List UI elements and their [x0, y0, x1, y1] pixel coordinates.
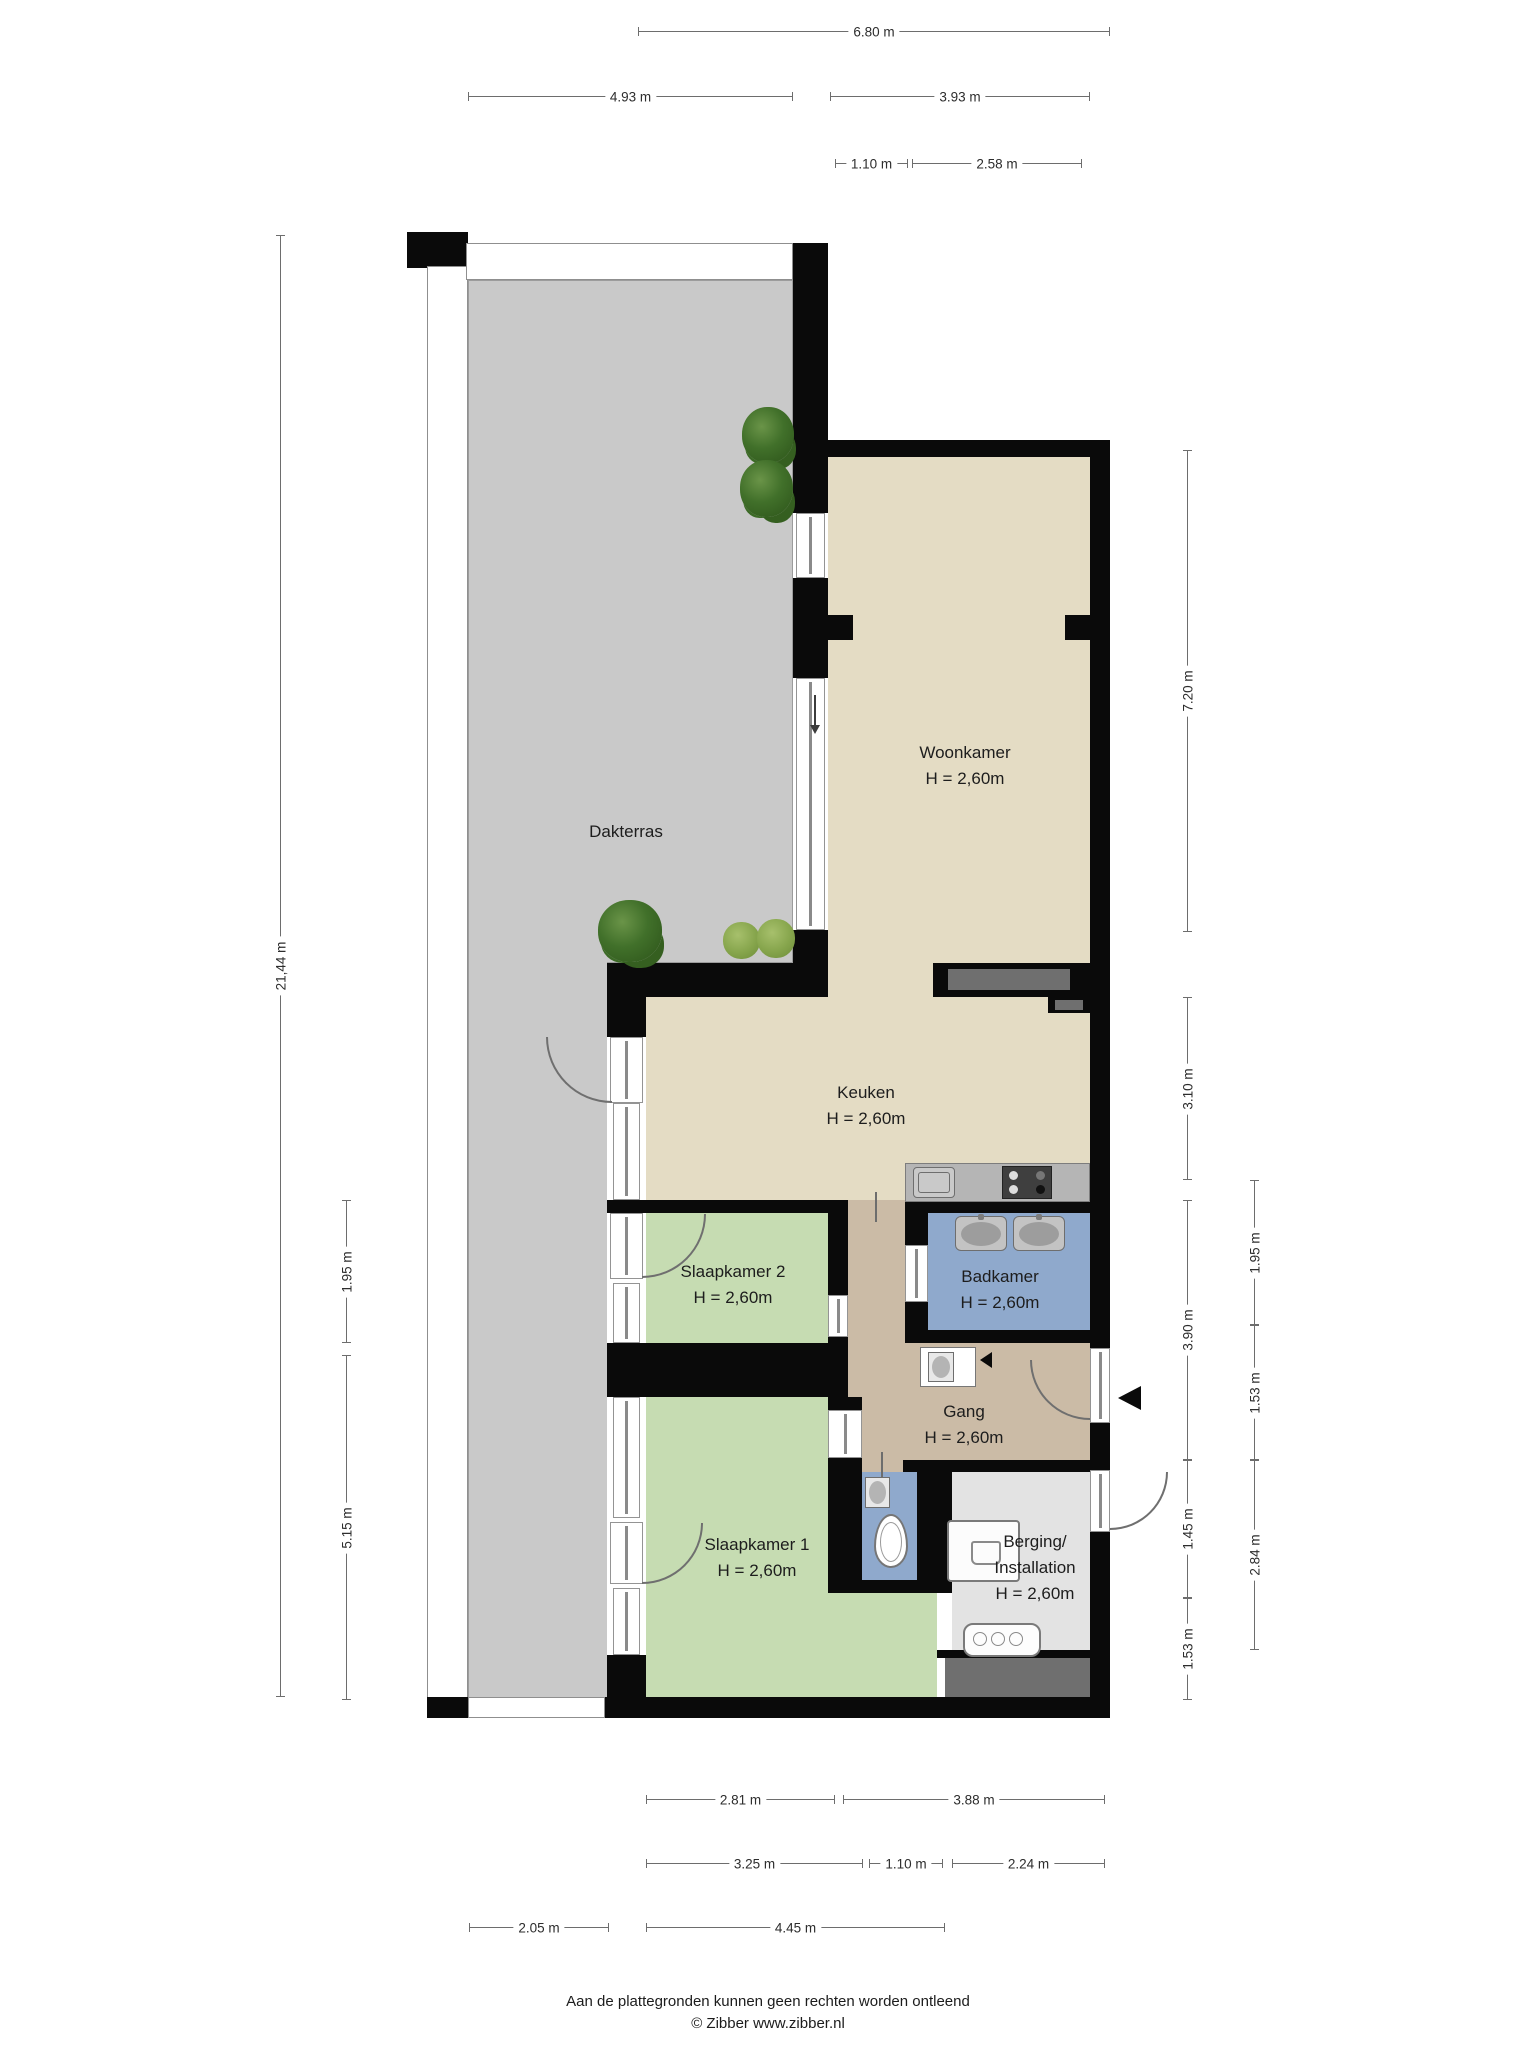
window [613, 1103, 640, 1200]
dim-tick [276, 235, 285, 236]
berging-door-arc [1110, 1472, 1168, 1530]
wall [607, 1200, 646, 1213]
dim-tick [608, 1923, 609, 1932]
dim-label: 2.24 m [1003, 1857, 1054, 1872]
room-name-2: Installation [994, 1558, 1075, 1577]
boiler-icon [963, 1623, 1041, 1657]
room-name: Dakterras [589, 822, 663, 841]
dim-tick [835, 159, 836, 168]
dim-label: 4.93 m [605, 90, 656, 105]
dimension-2144m: 21,44 m [276, 235, 286, 1697]
entrance-arrow-icon [1118, 1386, 1141, 1410]
wall-bedroom-divider [607, 1343, 848, 1397]
dimension-680m: 6.80 m [638, 27, 1110, 37]
wall-bottom-facade [605, 1697, 1110, 1718]
shrub-icon [757, 919, 795, 958]
dim-label: 1.95 m [1248, 1227, 1263, 1278]
dim-label: 4.45 m [770, 1921, 821, 1936]
dimension-493m: 4.93 m [468, 92, 793, 102]
dimension-153m: 1.53 m [1183, 1598, 1193, 1700]
room-height: H = 2,60m [996, 1584, 1075, 1603]
dim-label: 1.53 m [1248, 1367, 1263, 1418]
terrace-door-slaapkamer2 [610, 1213, 643, 1279]
dim-label: 2.05 m [513, 1921, 564, 1936]
dim-tick [1183, 1460, 1192, 1461]
dim-tick [1250, 1180, 1259, 1181]
dim-tick [342, 1342, 351, 1343]
dim-label: 3.90 m [1181, 1304, 1196, 1355]
dim-label: 21,44 m [274, 937, 289, 996]
dim-label: 1.10 m [880, 1857, 931, 1872]
dimension-281m: 2.81 m [646, 1795, 835, 1805]
wall [427, 1697, 468, 1718]
dim-tick [646, 1859, 647, 1868]
dim-tick [830, 92, 831, 101]
wall [607, 997, 646, 1037]
room-label-keuken: KeukenH = 2,60m [827, 1080, 906, 1132]
dim-tick [342, 1200, 351, 1201]
dimension-720m: 7.20 m [1183, 450, 1193, 932]
dim-tick [1104, 1859, 1105, 1868]
dimension-110m: 1.10 m [869, 1859, 943, 1869]
room-label-dakterras: Dakterras [589, 819, 663, 845]
dim-tick [862, 1859, 863, 1868]
shrub-icon [723, 922, 760, 959]
dim-label: 3.88 m [948, 1793, 999, 1808]
room-height: H = 2,60m [694, 1288, 773, 1307]
lowered-wall-inset [948, 969, 1070, 990]
dim-label: 1.95 m [340, 1246, 355, 1297]
dim-label: 2.58 m [971, 157, 1022, 172]
sliding-door-large [796, 678, 825, 930]
burner-icon [1009, 1185, 1018, 1194]
dimension-325m: 3.25 m [646, 1859, 863, 1869]
door-slaapkamer1-gang [828, 1410, 862, 1458]
wall [607, 1655, 646, 1703]
room-label-badkamer: BadkamerH = 2,60m [961, 1264, 1040, 1316]
window [613, 1588, 640, 1655]
wall-toilet-bottom [845, 1580, 952, 1593]
terrace-bottom-railing [468, 1697, 605, 1718]
room-name: Berging/ [1003, 1532, 1066, 1551]
dimension-205m: 2.05 m [469, 1923, 609, 1933]
dim-tick [1250, 1325, 1259, 1326]
dim-label: 3.10 m [1181, 1063, 1196, 1114]
dim-tick [912, 159, 913, 168]
room-slaapkamer1-ext [845, 1593, 937, 1697]
burner-icon [1009, 1171, 1018, 1180]
dimension-393m: 3.93 m [830, 92, 1090, 102]
room-label-slaapkamer2: Slaapkamer 2H = 2,60m [681, 1259, 786, 1311]
room-height: H = 2,60m [961, 1293, 1040, 1312]
burner-icon [1036, 1185, 1045, 1194]
wall [407, 232, 468, 268]
room-name: Slaapkamer 2 [681, 1262, 786, 1281]
dim-tick [1183, 931, 1192, 932]
dim-tick [1081, 159, 1082, 168]
berging-exterior-door [1090, 1470, 1110, 1532]
terrace-left-railing [427, 266, 468, 1699]
room-height: H = 2,60m [925, 1428, 1004, 1447]
dim-tick [1183, 1699, 1192, 1700]
tree-icon [740, 460, 793, 517]
room-label-woonkamer: WoonkamerH = 2,60m [919, 740, 1010, 792]
wall-terrace-step [607, 963, 828, 997]
window [613, 1397, 640, 1518]
room-name: Gang [943, 1402, 985, 1421]
wall [793, 578, 828, 678]
dim-label: 1.53 m [1181, 1623, 1196, 1674]
dimension-258m: 2.58 m [912, 159, 1082, 169]
dim-tick [1183, 1200, 1192, 1201]
washbasin-icon [955, 1216, 1007, 1251]
dimension-195m: 1.95 m [342, 1200, 352, 1343]
sliding-door [796, 513, 825, 578]
dim-tick [952, 1859, 953, 1868]
lowered-wall-inset [1055, 1000, 1083, 1010]
dim-tick [834, 1795, 835, 1804]
dim-tick [944, 1923, 945, 1932]
door-direction-icon [980, 1352, 992, 1368]
dim-tick [907, 159, 908, 168]
hand-basin-icon [928, 1352, 954, 1382]
room-label-gang: GangH = 2,60m [925, 1399, 1004, 1451]
dim-tick [792, 92, 793, 101]
room-label-berging: Berging/InstallationH = 2,60m [994, 1529, 1075, 1607]
dimension-515m: 5.15 m [342, 1355, 352, 1700]
dim-label: 1.10 m [846, 157, 897, 172]
dim-tick [1250, 1460, 1259, 1461]
dim-label: 5.15 m [340, 1502, 355, 1553]
dimension-195m: 1.95 m [1250, 1180, 1260, 1325]
room-height: H = 2,60m [926, 769, 1005, 788]
dimension-224m: 2.24 m [952, 1859, 1105, 1869]
dim-tick [1250, 1649, 1259, 1650]
washbasin-icon [1013, 1216, 1065, 1251]
room-woonkamer [828, 457, 1090, 997]
room-label-slaapkamer1: Slaapkamer 1H = 2,60m [705, 1532, 810, 1584]
terrace-top-railing [466, 243, 793, 280]
footer-disclaimer: Aan de plattegronden kunnen geen rechten… [0, 1993, 1536, 2010]
dim-tick [869, 1859, 870, 1868]
wall-stub [1065, 615, 1090, 640]
wall-stub [828, 615, 853, 640]
dim-tick [646, 1923, 647, 1932]
footer-copyright: © Zibber www.zibber.nl [0, 2015, 1536, 2032]
dim-label: 7.20 m [1181, 665, 1196, 716]
dim-tick [638, 27, 639, 36]
berging-niche [945, 1658, 1090, 1697]
dim-tick [468, 92, 469, 101]
kitchen-sink-icon [913, 1167, 955, 1198]
dim-tick [469, 1923, 470, 1932]
entrance-door [1090, 1348, 1110, 1423]
door-badkamer [905, 1245, 928, 1302]
dim-tick [1183, 450, 1192, 451]
stove-icon [1002, 1166, 1052, 1199]
dimension-110m: 1.10 m [835, 159, 908, 169]
dim-label: 6.80 m [848, 25, 899, 40]
dim-label: 1.45 m [1181, 1503, 1196, 1554]
burner-icon [1036, 1171, 1045, 1180]
room-name: Slaapkamer 1 [705, 1535, 810, 1554]
room-name: Badkamer [961, 1267, 1038, 1286]
dimension-390m: 3.90 m [1183, 1200, 1193, 1460]
terrace-door-keuken [610, 1037, 643, 1103]
room-name: Keuken [837, 1083, 895, 1102]
floorplan-canvas: Aan de plattegronden kunnen geen rechten… [0, 0, 1536, 2048]
dim-label: 3.93 m [934, 90, 985, 105]
dimension-445m: 4.45 m [646, 1923, 945, 1933]
tree-icon [742, 407, 794, 463]
terrace-door-slaapkamer1 [610, 1522, 643, 1584]
hand-basin-icon [865, 1477, 890, 1508]
entry-direction-arrow-icon [814, 695, 816, 725]
dim-tick [1183, 997, 1192, 998]
tree-icon [598, 900, 662, 962]
dim-tick [342, 1699, 351, 1700]
dim-label: 2.84 m [1248, 1529, 1263, 1580]
wall-badkamer-bottom [905, 1330, 1090, 1343]
terrace-floor [468, 280, 793, 963]
room-height: H = 2,60m [827, 1109, 906, 1128]
dim-tick [276, 1696, 285, 1697]
opening-tick [875, 1192, 877, 1222]
dim-tick [1183, 1598, 1192, 1599]
room-height: H = 2,60m [718, 1561, 797, 1580]
wall [793, 243, 828, 513]
window [613, 1283, 640, 1343]
dimension-284m: 2.84 m [1250, 1460, 1260, 1650]
dim-tick [646, 1795, 647, 1804]
dimension-153m: 1.53 m [1250, 1325, 1260, 1460]
dimension-145m: 1.45 m [1183, 1460, 1193, 1598]
room-name: Woonkamer [919, 743, 1010, 762]
dimension-388m: 3.88 m [843, 1795, 1105, 1805]
dim-tick [342, 1355, 351, 1356]
door-slaapkamer2-gang [828, 1295, 848, 1337]
dim-label: 3.25 m [729, 1857, 780, 1872]
dim-label: 2.81 m [715, 1793, 766, 1808]
dim-tick [1104, 1795, 1105, 1804]
dim-tick [843, 1795, 844, 1804]
dim-tick [1109, 27, 1110, 36]
dim-tick [942, 1859, 943, 1868]
dimension-310m: 3.10 m [1183, 997, 1193, 1180]
dim-tick [1089, 92, 1090, 101]
dim-tick [1183, 1179, 1192, 1180]
wall-woonkamer-top [793, 440, 1110, 457]
